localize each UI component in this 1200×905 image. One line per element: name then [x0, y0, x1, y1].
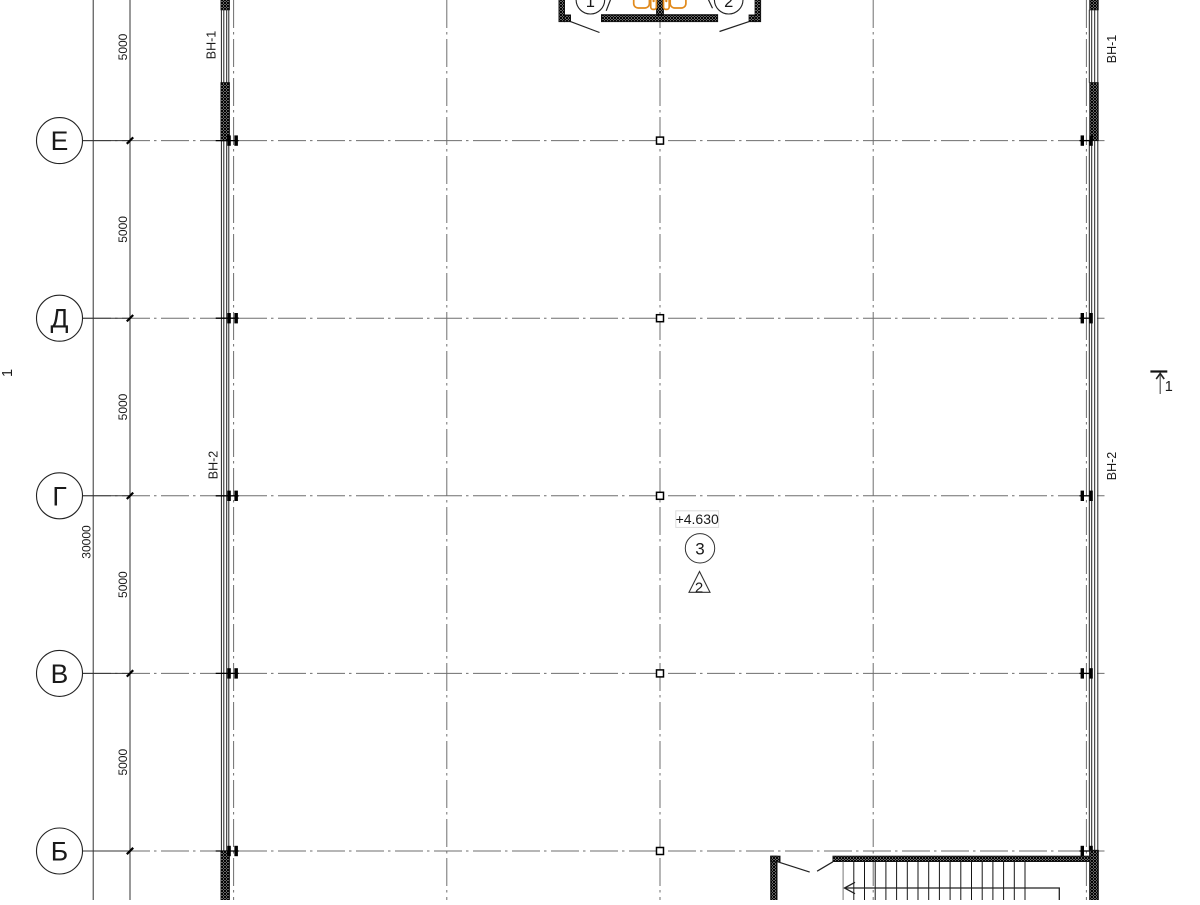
svg-text:1: 1 [0, 369, 16, 377]
svg-text:ВН-1: ВН-1 [205, 31, 219, 60]
svg-text:5000: 5000 [116, 571, 130, 598]
svg-text:2: 2 [695, 580, 703, 597]
svg-text:ВН-1: ВН-1 [1105, 35, 1119, 64]
svg-text:5000: 5000 [116, 216, 130, 243]
svg-text:Е: Е [51, 126, 69, 156]
svg-text:ВН-2: ВН-2 [207, 451, 221, 480]
svg-text:2: 2 [724, 0, 733, 11]
svg-text:30000: 30000 [80, 525, 94, 559]
svg-text:1: 1 [1165, 379, 1173, 395]
svg-text:ВН-2: ВН-2 [1105, 452, 1119, 481]
svg-text:3: 3 [695, 539, 704, 558]
svg-text:1: 1 [586, 0, 595, 11]
svg-text:Г: Г [52, 481, 66, 511]
svg-text:Д: Д [51, 304, 69, 334]
svg-text:Б: Б [51, 837, 68, 867]
svg-text:+4.630: +4.630 [676, 511, 719, 527]
svg-text:5000: 5000 [116, 749, 130, 776]
svg-text:5000: 5000 [116, 393, 130, 420]
svg-text:5000: 5000 [116, 33, 130, 60]
svg-text:В: В [51, 659, 69, 689]
